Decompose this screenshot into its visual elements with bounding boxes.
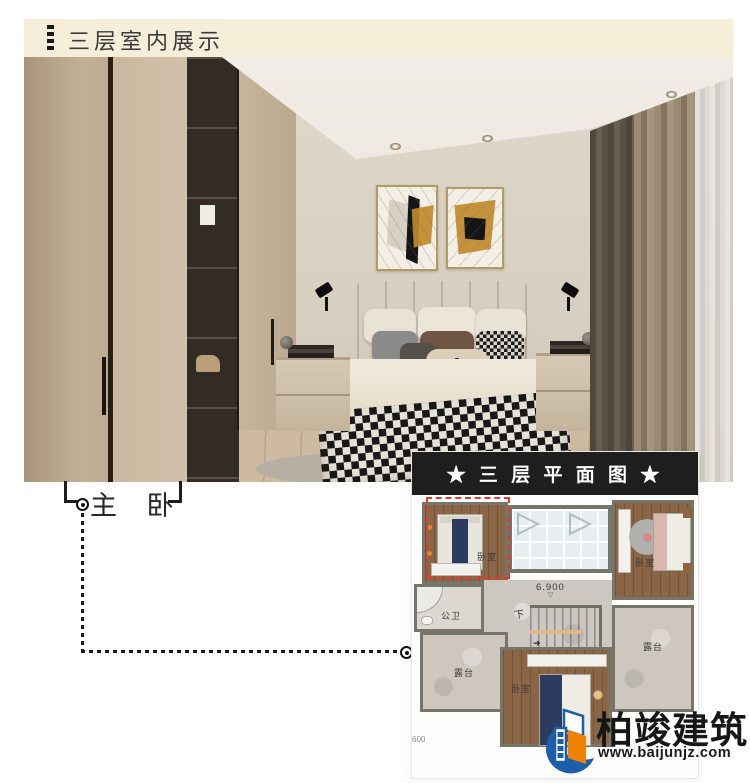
stair-rail	[530, 630, 584, 634]
downlight-icon	[666, 91, 677, 98]
shelf-box	[200, 205, 215, 225]
room-label: 公卫	[441, 609, 461, 622]
downlight-icon	[390, 143, 401, 150]
company-logo: 柏竣建筑 www.baijunjz.com	[538, 700, 750, 780]
artwork-left	[376, 185, 438, 271]
bedroom-photo	[24, 57, 733, 482]
art-lines	[448, 189, 502, 267]
wardrobe-panel	[113, 57, 187, 482]
plan-bathroom: 公卫	[414, 584, 484, 632]
room-label: 卧室	[511, 682, 531, 695]
plan-sink	[593, 690, 603, 700]
page: 三层室内展示	[0, 0, 750, 783]
stairs-down-label: 下	[513, 605, 525, 621]
elevation-marker: 6.900 ▽	[536, 582, 565, 598]
highlight-rectangle	[426, 497, 510, 579]
plan-wardrobe	[527, 654, 607, 667]
section-header: 三层室内展示	[24, 19, 733, 57]
logo-building-icon	[538, 706, 602, 774]
books-stack	[288, 345, 334, 358]
artwork-right	[446, 187, 504, 269]
wardrobe-open-shelves	[187, 57, 239, 482]
alarm-clock	[280, 336, 293, 349]
wardrobe-panel	[24, 57, 108, 482]
connector-line-vertical	[81, 513, 84, 653]
wall-lamp-right	[567, 297, 570, 311]
section-title: 三层室内展示	[68, 24, 224, 56]
company-website: www.baijunjz.com	[598, 745, 731, 761]
connector-dot-icon	[76, 498, 89, 511]
skylight-hatch-icon	[512, 511, 608, 541]
plan-bedroom-top-right: 卧室	[612, 500, 694, 600]
wall-lamp-left	[325, 297, 328, 311]
curtain-main	[634, 77, 700, 482]
art-lines	[378, 187, 436, 269]
room-label: 卧室	[635, 556, 655, 569]
plan-bed-blanket	[654, 514, 667, 570]
plan-nightstand	[683, 508, 693, 518]
dashed-bar-icon	[47, 25, 54, 52]
curtain-sheer	[695, 77, 733, 482]
plan-skylight	[508, 505, 612, 573]
shelf-handbag	[196, 355, 220, 372]
elevation-triangle-icon: ▽	[536, 593, 565, 598]
plan-terrace-right: 露台	[612, 605, 694, 712]
curtains	[590, 77, 733, 482]
bracket-left	[64, 481, 78, 503]
floorplan-banner: ★ 三 层 平 面 图 ★	[412, 452, 698, 495]
room-label: 露台	[643, 640, 663, 653]
room-label: 露台	[454, 666, 474, 679]
plan-toilet	[421, 616, 433, 625]
wardrobe-handle	[271, 319, 274, 365]
plan-stairs: ➔	[530, 605, 602, 653]
room-callout-label: 主 卧	[90, 484, 185, 523]
connector-line-horizontal	[81, 650, 403, 653]
plan-shower	[417, 587, 443, 613]
wardrobe-handle	[102, 357, 106, 415]
plan-nightstand	[683, 563, 693, 573]
plan-terrace-left: 露台	[420, 632, 508, 712]
nightstand-left	[276, 357, 350, 431]
downlight-icon	[482, 135, 493, 142]
floorplan-title: ★ 三 层 平 面 图 ★	[447, 460, 664, 487]
dimension-text: 600	[412, 735, 425, 744]
